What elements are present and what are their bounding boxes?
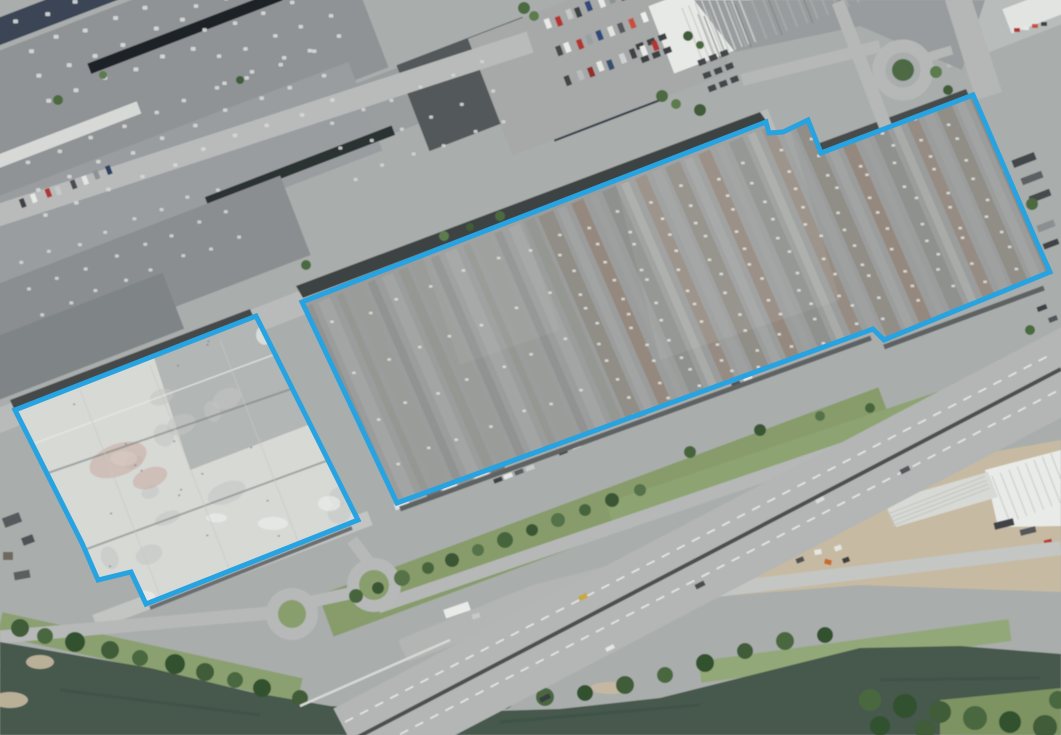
tree xyxy=(656,90,668,102)
tree xyxy=(466,223,474,231)
roof-skylight xyxy=(836,212,840,215)
roof-patch-light xyxy=(258,517,288,530)
skylight-dot xyxy=(46,99,51,103)
skylight-dot xyxy=(197,220,201,223)
skylight-dot xyxy=(244,76,249,80)
skylight-dot xyxy=(501,120,505,123)
skylight-dot xyxy=(133,67,138,71)
skylight-dot xyxy=(202,28,207,32)
ramp-center-trees xyxy=(892,59,914,81)
skylight-dot xyxy=(380,164,384,167)
roof-skylight xyxy=(454,438,458,441)
roof-skylight xyxy=(616,378,620,381)
roof-skylight xyxy=(1015,268,1019,271)
skylight-dot xyxy=(40,313,44,316)
roof-speck xyxy=(178,495,180,497)
roof-skylight xyxy=(833,273,837,276)
skylight-dot xyxy=(29,49,34,53)
aerial-site-map xyxy=(0,0,1061,735)
roof-skylight xyxy=(881,318,885,321)
roof-speck xyxy=(177,365,179,367)
roof-skylight xyxy=(465,378,469,381)
far-bank-tree xyxy=(859,689,881,711)
roof-skylight xyxy=(925,240,929,243)
skylight-dot xyxy=(106,188,111,192)
skylight-dot xyxy=(140,175,145,179)
skylight-dot xyxy=(83,29,88,33)
riverbank-tree xyxy=(737,643,753,659)
parked-truck xyxy=(1014,28,1020,32)
skylight-dot xyxy=(78,243,82,246)
roof-speck xyxy=(180,489,182,491)
tree xyxy=(53,95,63,105)
roof-skylight xyxy=(377,418,381,421)
tree xyxy=(683,31,693,41)
skylight-dot xyxy=(74,201,79,205)
skylight-dot xyxy=(308,49,313,53)
tree xyxy=(1025,325,1035,335)
tree xyxy=(518,2,530,14)
skylight-dot xyxy=(216,188,220,191)
roof-skylight xyxy=(970,262,974,265)
roundabout-island xyxy=(278,600,306,628)
tree xyxy=(439,231,449,241)
riverbank-tree xyxy=(165,654,185,674)
roof-skylight xyxy=(892,144,896,147)
skylight-dot xyxy=(491,89,495,92)
roof-skylight xyxy=(919,139,923,142)
shrub xyxy=(445,553,459,567)
skylight-dot xyxy=(143,243,147,246)
roof-skylight xyxy=(418,346,422,349)
skylight-dot xyxy=(55,277,59,280)
riverbank-tree xyxy=(776,632,794,650)
roof-skylight xyxy=(956,137,960,140)
skylight-dot xyxy=(149,268,153,271)
shrub xyxy=(605,493,619,507)
roof-skylight xyxy=(587,227,591,230)
skylight-dot xyxy=(69,301,73,304)
skylight-dot xyxy=(442,144,446,147)
riverbank-tree xyxy=(616,676,634,694)
roof-skylight xyxy=(936,268,940,271)
roof-skylight xyxy=(666,397,670,400)
skylight-dot xyxy=(93,289,97,292)
skylight-dot xyxy=(287,86,292,90)
roof-skylight xyxy=(579,293,583,296)
skylight-dot xyxy=(67,175,72,179)
parked-truck xyxy=(1032,24,1038,28)
shrub xyxy=(349,589,363,603)
roof-skylight xyxy=(429,285,433,288)
shrub xyxy=(579,504,591,516)
roof-skylight xyxy=(948,206,952,209)
skylight-dot xyxy=(264,124,269,128)
skylight-dot xyxy=(215,86,220,90)
roof-skylight xyxy=(698,384,702,387)
far-bank-tree xyxy=(999,711,1021,733)
roof-skylight xyxy=(853,244,857,247)
skylight-dot xyxy=(290,1,295,5)
roof-skylight xyxy=(947,124,951,127)
roof-skylight xyxy=(645,344,649,347)
roof-skylight xyxy=(932,168,936,171)
roof-skylight xyxy=(427,447,431,450)
sand-patch xyxy=(26,655,54,669)
roof-skylight xyxy=(579,389,583,392)
roof-speck xyxy=(250,447,252,449)
roof-speck xyxy=(109,566,111,568)
roof-skylight xyxy=(937,253,941,256)
skylight-dot xyxy=(180,18,185,22)
riverbank-tree xyxy=(657,667,673,683)
roof-skylight xyxy=(558,254,562,257)
roof-skylight xyxy=(947,192,951,195)
skylight-dot xyxy=(142,6,147,10)
shrub xyxy=(684,446,696,458)
roof-skylight xyxy=(916,299,920,302)
roof-skylight xyxy=(629,327,633,330)
skylight-dot xyxy=(27,287,31,290)
roof-skylight xyxy=(352,372,356,375)
skylight-dot xyxy=(181,254,185,257)
roof-skylight xyxy=(929,155,933,158)
riverbank-tree xyxy=(227,672,243,688)
roof-skylight xyxy=(835,187,839,190)
roof-skylight xyxy=(403,401,407,404)
roof-skylight xyxy=(436,392,440,395)
roof-skylight xyxy=(921,223,925,226)
riverbank-tree xyxy=(817,627,833,643)
roof-skylight xyxy=(893,162,897,165)
riverbank-tree xyxy=(132,650,148,666)
skylight-dot xyxy=(209,247,213,250)
roof-speck xyxy=(110,513,112,515)
skylight-dot xyxy=(237,235,241,238)
roof-skylight xyxy=(867,274,871,277)
roof-skylight xyxy=(961,237,965,240)
shrub xyxy=(865,403,875,413)
roof-skylight xyxy=(958,227,962,230)
skylight-dot xyxy=(330,122,334,125)
roof-skylight xyxy=(915,197,919,200)
roof-skylight xyxy=(627,313,631,316)
skylight-dot xyxy=(13,19,18,23)
roof-skylight xyxy=(985,215,989,218)
roof-skylight xyxy=(572,270,576,273)
tree xyxy=(1026,198,1038,210)
skylight-dot xyxy=(312,49,317,53)
skylight-dot xyxy=(400,128,404,131)
roof-skylight xyxy=(529,353,533,356)
roof-skylight xyxy=(855,323,859,326)
water-streak xyxy=(880,678,1040,680)
roof-skylight xyxy=(603,261,607,264)
skylight-dot xyxy=(160,136,165,140)
skylight-dot xyxy=(103,231,107,234)
skylight-dot xyxy=(259,96,264,100)
skylight-dot xyxy=(354,178,358,181)
skylight-dot xyxy=(160,208,164,211)
aerial-site-map-canvas xyxy=(0,0,1061,735)
shrub xyxy=(634,484,646,496)
roof-skylight xyxy=(911,285,915,288)
riverbank-tree xyxy=(11,619,29,637)
skylight-dot xyxy=(73,88,78,92)
roof-skylight xyxy=(890,248,894,251)
roof-skylight xyxy=(868,197,872,200)
riverbank-tree xyxy=(577,685,593,701)
shrub xyxy=(472,544,484,556)
far-bank-tree xyxy=(893,694,917,718)
roof-skylight xyxy=(965,159,969,162)
skylight-dot xyxy=(419,85,423,88)
roof-skylight xyxy=(652,359,656,362)
roof-skylight xyxy=(720,359,724,362)
shrub xyxy=(394,570,410,586)
roof-speck xyxy=(207,344,209,346)
roof-skylight xyxy=(605,359,609,362)
shrub xyxy=(551,513,565,527)
skylight-dot xyxy=(96,160,101,164)
skylight-dot xyxy=(361,108,365,111)
roof-speck xyxy=(207,341,209,343)
skylight-dot xyxy=(170,234,174,237)
skylight-dot xyxy=(154,27,159,31)
roof-speck xyxy=(278,535,280,537)
skylight-dot xyxy=(191,47,196,51)
skylight-dot xyxy=(243,47,248,51)
skylight-dot xyxy=(273,34,278,38)
roof-skylight xyxy=(877,296,881,299)
skylight-dot xyxy=(480,60,484,63)
roof-skylight xyxy=(330,321,334,324)
roof-skylight xyxy=(1000,231,1004,234)
roof-skylight xyxy=(595,322,599,325)
far-bank-tree xyxy=(929,701,951,723)
roof-speck xyxy=(125,443,127,445)
riverbank-tree xyxy=(37,628,53,644)
skylight-dot xyxy=(278,63,283,67)
yard-machinery xyxy=(3,552,13,560)
roof-skylight xyxy=(522,410,526,413)
riverbank-tree xyxy=(101,641,119,659)
skylight-dot xyxy=(88,136,93,140)
roof-skylight xyxy=(903,185,907,188)
skylight-dot xyxy=(160,55,165,59)
roof-speck xyxy=(206,535,208,537)
skylight-dot xyxy=(233,21,238,25)
tree xyxy=(671,99,681,109)
roof-skylight xyxy=(730,370,734,373)
skylight-dot xyxy=(173,163,178,167)
skylight-dot xyxy=(45,12,50,16)
shrub xyxy=(422,562,434,574)
parked-truck xyxy=(1023,26,1029,30)
tree xyxy=(99,71,107,79)
shrub xyxy=(372,582,384,594)
aerial-photo-layer xyxy=(0,0,1061,735)
roof-skylight xyxy=(584,307,588,310)
roof-skylight xyxy=(489,425,493,428)
skylight-dot xyxy=(154,111,159,115)
skylight-dot xyxy=(194,4,199,8)
roof-skylight xyxy=(716,343,720,346)
skylight-dot xyxy=(329,14,334,18)
riverbank-tree xyxy=(696,654,714,672)
skylight-dot xyxy=(26,161,31,165)
roof-skylight xyxy=(627,396,631,399)
roof-skylight xyxy=(564,338,568,341)
roof-speck xyxy=(134,464,136,466)
skylight-dot xyxy=(193,124,198,128)
skylight-dot xyxy=(337,34,342,38)
tree xyxy=(495,211,505,221)
skylight-dot xyxy=(429,116,433,119)
skylight-dot xyxy=(370,139,374,142)
tree xyxy=(943,85,953,95)
riverbank-tree xyxy=(253,679,271,697)
roof-skylight xyxy=(986,199,990,202)
roof-skylight xyxy=(903,270,907,273)
skylight-dot xyxy=(300,113,305,117)
skylight-dot xyxy=(224,210,228,213)
skylight-dot xyxy=(390,99,394,102)
skylight-dot xyxy=(330,98,335,102)
skylight-dot xyxy=(124,279,128,282)
roof-skylight xyxy=(983,281,987,284)
skylight-dot xyxy=(120,43,125,47)
roof-skylight xyxy=(369,312,373,315)
tree xyxy=(529,11,539,21)
skylight-dot xyxy=(47,250,51,253)
skylight-dot xyxy=(261,11,266,15)
roof-speck xyxy=(267,500,269,502)
skylight-dot xyxy=(282,56,287,60)
shrub xyxy=(497,532,513,548)
roof-patch-light xyxy=(318,496,341,511)
tree xyxy=(301,260,311,270)
roof-skylight xyxy=(548,292,552,295)
skylight-dot xyxy=(36,188,41,192)
roof-skylight xyxy=(394,298,398,301)
roof-skylight xyxy=(843,229,847,232)
roof-skylight xyxy=(790,345,794,348)
parked-truck xyxy=(1041,22,1047,26)
roof-skylight xyxy=(777,333,781,336)
roof-skylight xyxy=(971,178,975,181)
roof-skylight xyxy=(387,358,391,361)
far-bank-tree xyxy=(963,706,987,730)
skylight-dot xyxy=(43,213,48,217)
roof-skylight xyxy=(597,343,601,346)
roof-speck xyxy=(201,473,203,475)
skylight-dot xyxy=(93,54,98,58)
skylight-dot xyxy=(36,74,41,78)
skylight-dot xyxy=(182,99,187,103)
roof-skylight xyxy=(558,234,562,237)
roof-skylight xyxy=(851,304,855,307)
tree xyxy=(696,41,704,49)
roof-speck xyxy=(173,441,175,443)
roof-skylight xyxy=(616,210,620,213)
skylight-dot xyxy=(217,54,222,58)
roof-skylight xyxy=(865,174,869,177)
roof-skylight xyxy=(861,264,865,267)
skylight-dot xyxy=(185,196,189,199)
skylight-dot xyxy=(222,81,227,85)
roof-skylight xyxy=(680,356,684,359)
skylight-dot xyxy=(299,25,304,29)
tree xyxy=(930,66,942,78)
skylight-dot xyxy=(115,254,119,257)
roof-skylight xyxy=(688,368,692,371)
roof-skylight xyxy=(621,298,625,301)
skylight-dot xyxy=(201,147,206,151)
shrub xyxy=(815,411,825,421)
skylight-dot xyxy=(122,124,127,128)
tree xyxy=(694,104,706,116)
skylight-dot xyxy=(73,0,78,4)
skylight-dot xyxy=(412,152,416,155)
skylight-dot xyxy=(58,150,63,154)
riverbank-tree xyxy=(65,632,85,652)
roof-speck xyxy=(73,403,75,405)
skylight-dot xyxy=(233,134,238,138)
skylight-dot xyxy=(132,217,136,220)
skylight-dot xyxy=(54,35,59,39)
roof-skylight xyxy=(826,174,830,177)
skylight-dot xyxy=(67,63,72,67)
roof-skylight xyxy=(859,165,863,168)
skylight-dot xyxy=(474,130,478,133)
roof-skylight xyxy=(658,382,662,385)
skylight-dot xyxy=(113,16,118,20)
roof-skylight xyxy=(951,285,955,288)
roof-skylight xyxy=(596,243,600,246)
skylight-dot xyxy=(460,103,464,106)
roof-skylight xyxy=(813,318,817,321)
roof-skylight xyxy=(756,349,760,352)
skylight-dot xyxy=(19,261,23,264)
skylight-dot xyxy=(223,108,228,112)
skylight-dot xyxy=(250,70,255,74)
shrub xyxy=(526,524,538,536)
roof-skylight xyxy=(886,227,890,230)
skylight-dot xyxy=(84,267,88,270)
skylight-dot xyxy=(322,74,327,78)
tree xyxy=(236,76,244,84)
roof-speck xyxy=(141,470,143,472)
roof-skylight xyxy=(613,279,617,282)
roof-skylight xyxy=(1008,246,1012,249)
skylight-dot xyxy=(338,146,342,149)
roof-skylight xyxy=(549,403,553,406)
roof-skylight xyxy=(876,211,880,214)
shrub xyxy=(754,424,766,436)
roof-skylight xyxy=(503,366,507,369)
skylight-dot xyxy=(451,74,455,77)
roof-skylight xyxy=(396,463,400,466)
riverbank-tree xyxy=(196,663,214,681)
skylight-dot xyxy=(131,151,136,155)
